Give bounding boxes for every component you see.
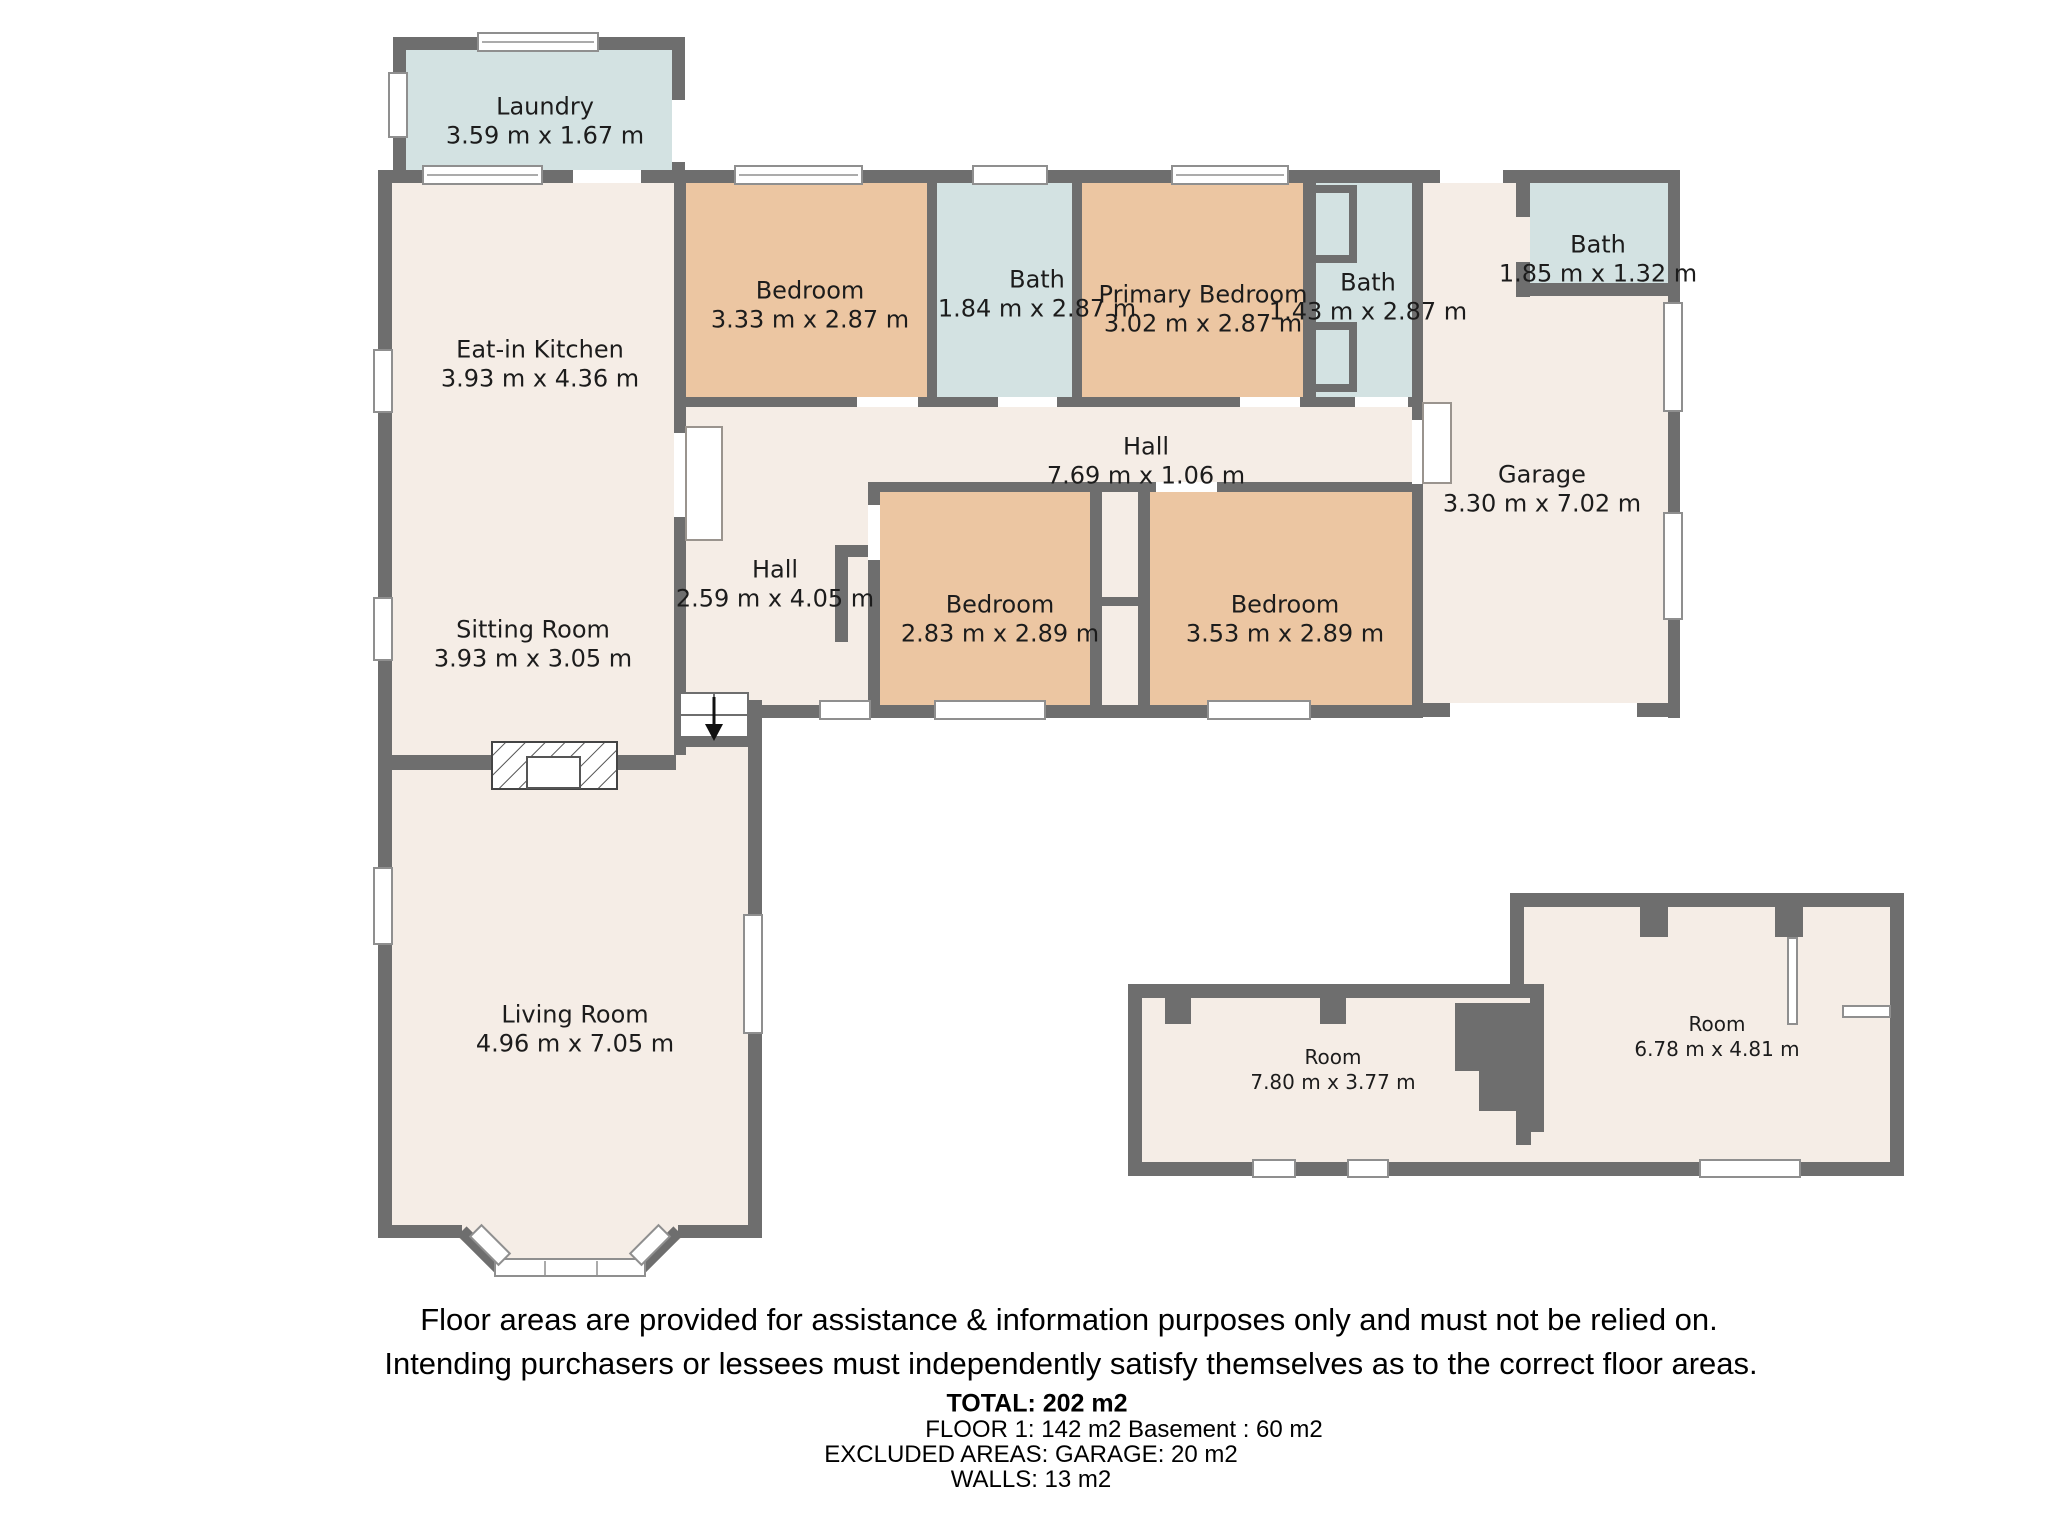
wall [1349,185,1357,263]
room-name: Garage [1443,461,1641,490]
staircase [680,693,748,741]
window [374,868,392,944]
window [1664,303,1682,411]
wall [378,1225,462,1238]
floor-areas-text: FLOOR 1: 142 m2 Basement : 60 m2 [925,1416,1323,1444]
door-gap [1240,397,1300,407]
wall-stub [1775,893,1803,937]
room-label-bedroom3: Bedroom 3.53 m x 2.89 m [1186,591,1384,650]
room-name: Eat-in Kitchen [441,336,639,365]
window [389,73,407,137]
door-leaf [686,427,722,540]
wall-left [378,170,392,1238]
wall [1128,984,1142,1176]
window [1348,1160,1388,1177]
wall [1128,984,1544,998]
room-label-bedroom1: Bedroom 3.33 m x 2.87 m [711,277,909,336]
wall [1530,998,1544,1132]
floorplan-page: Laundry 3.59 m x 1.67 m Eat-in Kitchen 3… [0,0,2048,1536]
room-dims: 1.43 m x 2.87 m [1269,298,1467,327]
window [1253,1160,1295,1177]
room-label-hall2: Hall 2.59 m x 4.05 m [676,556,874,615]
wall [1890,893,1904,1176]
room-label-garage: Garage 3.30 m x 7.02 m [1443,461,1641,520]
wall-stub [1165,998,1191,1024]
room-label-living-room: Living Room 4.96 m x 7.05 m [476,1001,674,1060]
total-area-text: TOTAL: 202 m2 [946,1390,1127,1419]
window [1700,1160,1800,1177]
excluded-areas-text: EXCLUDED AREAS: GARAGE: 20 m2 [824,1441,1237,1469]
door-gap [1440,170,1503,183]
room-name: Bedroom [901,591,1099,620]
wall [1349,322,1357,392]
wall [1128,1162,1544,1176]
window [1208,701,1310,719]
room-dims: 4.96 m x 7.05 m [476,1030,674,1059]
room-dims: 7.69 m x 1.06 m [1047,462,1245,491]
room-dims: 3.53 m x 2.89 m [1186,620,1384,649]
wall [1516,173,1530,217]
wall [678,1225,762,1238]
room-label-bath3: Bath 1.85 m x 1.32 m [1499,231,1697,290]
room-dims: 2.59 m x 4.05 m [676,585,874,614]
door-gap [1355,397,1408,407]
room-dims: 3.93 m x 3.05 m [434,645,632,674]
window [1843,1006,1890,1017]
room-label-bedroom2: Bedroom 2.83 m x 2.89 m [901,591,1099,650]
wall-stub [1320,998,1346,1024]
room-name: Hall [1047,433,1245,462]
room-dims: 1.85 m x 1.32 m [1499,260,1697,289]
room-dims: 3.93 m x 4.36 m [441,365,639,394]
door-gap [672,100,685,162]
window [744,915,762,1033]
room-label-hall1: Hall 7.69 m x 1.06 m [1047,433,1245,492]
door-gap [998,397,1057,407]
room-name: Hall [676,556,874,585]
room-name: Living Room [476,1001,674,1030]
room-dims: 3.30 m x 7.02 m [1443,490,1641,519]
room-label-basement2: Room 6.78 m x 4.81 m [1634,1012,1799,1062]
room-name: Laundry [446,93,644,122]
window [1664,513,1682,619]
door-gap [674,433,686,517]
room-dims: 2.83 m x 2.89 m [901,620,1099,649]
room-label-basement1: Room 7.80 m x 3.77 m [1250,1045,1415,1095]
room-name: Bath [1269,269,1467,298]
wall [927,183,937,397]
room-name: Room [1634,1012,1799,1037]
room-dims: 3.59 m x 1.67 m [446,122,644,151]
room-name: Room [1250,1045,1415,1070]
window [820,701,870,719]
door-gap-entry [573,170,641,183]
window [935,701,1045,719]
room-name: Bedroom [711,277,909,306]
disclaimer-line-2: Intending purchasers or lessees must ind… [384,1346,1757,1382]
window [374,598,392,660]
room-label-laundry: Laundry 3.59 m x 1.67 m [446,93,644,152]
door-gap [857,397,918,407]
door-gap [1412,420,1423,484]
room-label-kitchen: Eat-in Kitchen 3.93 m x 4.36 m [441,336,639,395]
garage-door-opening [1450,703,1637,717]
room-label-bath2: Bath 1.43 m x 2.87 m [1269,269,1467,328]
wall [1510,893,1524,998]
room-label-sitting-room: Sitting Room 3.93 m x 3.05 m [434,616,632,675]
door-gap [868,505,880,560]
living-room-floor [392,755,762,1238]
walls-area-text: WALLS: 13 m2 [951,1466,1112,1494]
fireplace [492,742,617,789]
disclaimer-line-1: Floor areas are provided for assistance … [420,1302,1718,1338]
room-name: Bedroom [1186,591,1384,620]
wall [1510,893,1904,907]
room-name: Bath [1499,231,1697,260]
room-name: Sitting Room [434,616,632,645]
basement-stairs [1516,1111,1531,1145]
room-dims: 7.80 m x 3.77 m [1250,1070,1415,1095]
basement-stairs [1455,1003,1531,1071]
room-dims: 6.78 m x 4.81 m [1634,1037,1799,1062]
basement-stairs [1479,1071,1531,1111]
room-dims: 3.33 m x 2.87 m [711,306,909,335]
window [374,350,392,412]
fireplace-box [527,757,580,788]
bay-window [495,1259,645,1276]
window [973,166,1047,184]
wall-stub [1640,893,1668,937]
